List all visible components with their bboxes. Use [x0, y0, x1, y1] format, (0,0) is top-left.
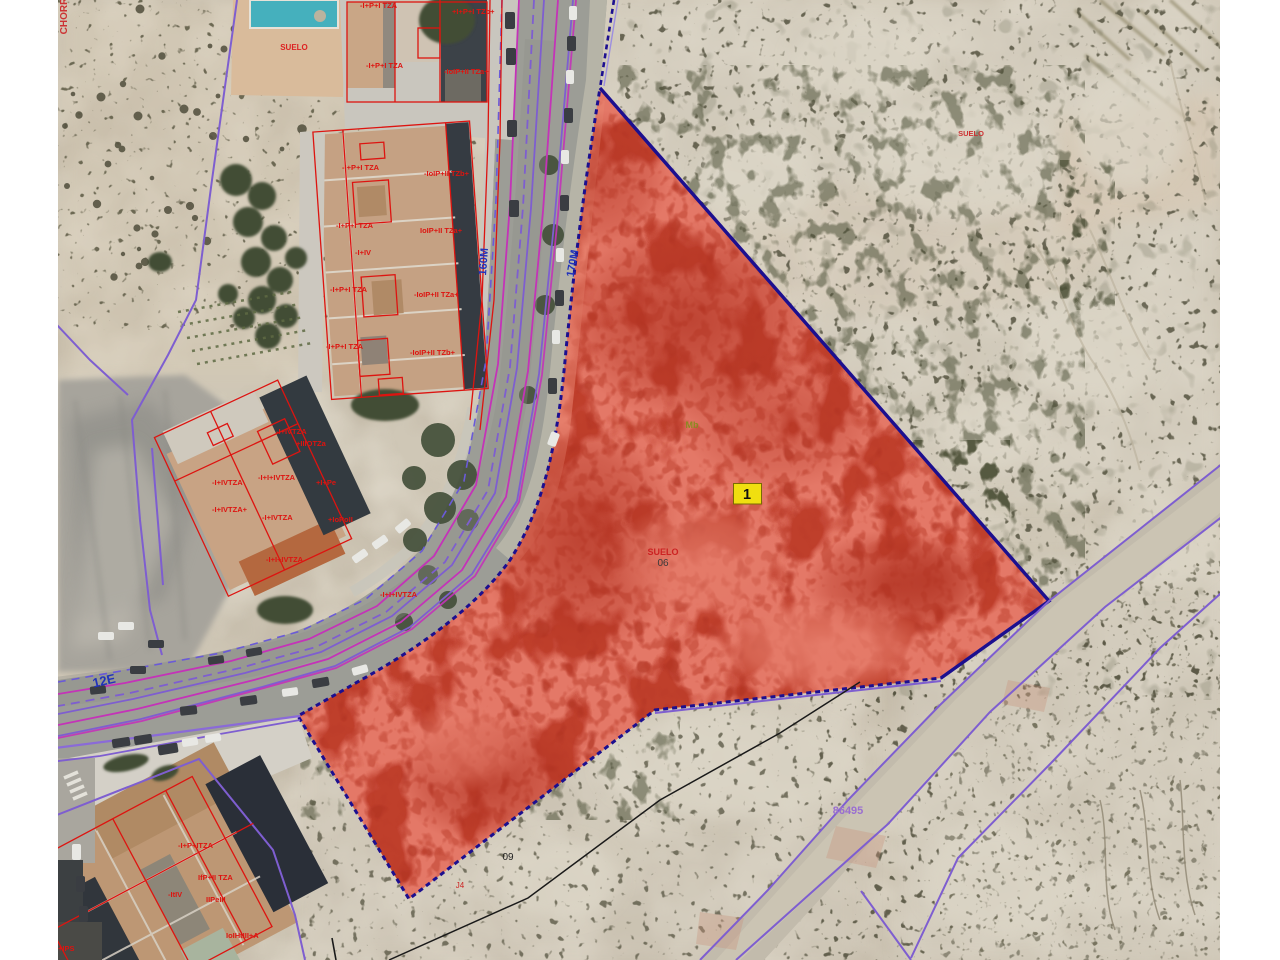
svg-text:-IoIP+II TZa+: -IoIP+II TZa+: [444, 67, 489, 76]
svg-text:+IoPoII: +IoPoII: [328, 515, 353, 524]
svg-text:+IPS: +IPS: [58, 944, 74, 953]
svg-text:-ItIV: -ItIV: [168, 890, 182, 899]
svg-text:-I+I+IVTZA: -I+I+IVTZA: [380, 590, 418, 599]
svg-text:-I+P+I TZA: -I+P+I TZA: [336, 221, 374, 230]
svg-text:IfP+II TZA: IfP+II TZA: [198, 873, 233, 882]
svg-text:-I+P+ITZA: -I+P+ITZA: [178, 841, 214, 850]
svg-text:-IoIP+II TZa+: -IoIP+II TZa+: [414, 290, 459, 299]
svg-text:-I+P+I TZA: -I+P+I TZA: [342, 163, 380, 172]
svg-text:-I+IV: -I+IV: [355, 248, 371, 257]
svg-text:-I+I+IVTZA: -I+I+IVTZA: [266, 555, 304, 564]
svg-text:-I+IVTZA: -I+IVTZA: [262, 513, 293, 522]
svg-text:+I+Pe: +I+Pe: [316, 478, 336, 487]
svg-text:-I+I+IVTZA: -I+I+IVTZA: [258, 473, 296, 482]
svg-text:-I+IVTZA: -I+IVTZA: [276, 427, 307, 436]
svg-text:09: 09: [502, 852, 514, 863]
svg-text:-IoIP+II TZb+: -IoIP+II TZb+: [410, 348, 456, 357]
svg-text:-IoIP+II TZb+: -IoIP+II TZb+: [424, 169, 470, 178]
svg-text:86495: 86495: [833, 805, 864, 817]
svg-text:SUELO: SUELO: [280, 43, 308, 52]
svg-text:SUELO: SUELO: [647, 547, 678, 557]
svg-text:+IIIOTZa: +IIIOTZa: [296, 439, 327, 448]
svg-text:-I+P+I TZA: -I+P+I TZA: [360, 1, 398, 10]
svg-text:J4: J4: [456, 881, 465, 890]
svg-text:-I+IVTZA: -I+IVTZA: [212, 478, 243, 487]
svg-text:+I+P+I TZb+: +I+P+I TZb+: [452, 7, 495, 16]
svg-text:SUELO: SUELO: [958, 129, 984, 138]
svg-text:-I+P+I TZA: -I+P+I TZA: [326, 342, 364, 351]
svg-text:160M: 160M: [477, 248, 491, 276]
svg-text:-I+P+I TZA: -I+P+I TZA: [366, 61, 404, 70]
svg-text:IoIHtIII+A: IoIHtIII+A: [226, 931, 259, 940]
svg-text:-I+P+I TZA: -I+P+I TZA: [330, 285, 368, 294]
svg-text:1: 1: [743, 487, 751, 503]
svg-text:IoIP+II TZa+: IoIP+II TZa+: [420, 226, 463, 235]
svg-text:Mb: Mb: [686, 420, 699, 430]
svg-text:IIPeIII: IIPeIII: [206, 895, 226, 904]
svg-text:-I+IVTZA+: -I+IVTZA+: [212, 505, 248, 514]
svg-text:06: 06: [657, 558, 669, 569]
svg-text:CHORR: CHORR: [59, 0, 70, 34]
